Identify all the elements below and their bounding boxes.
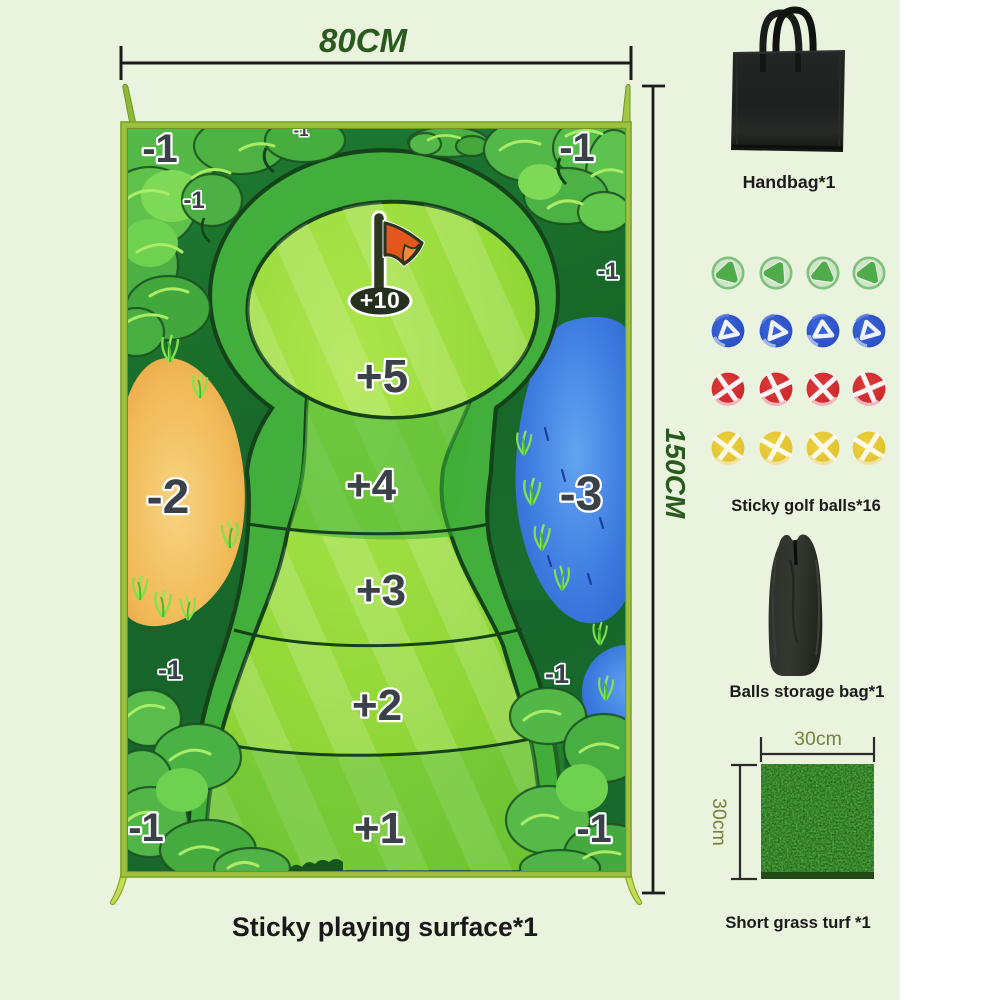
svg-text:-1: -1 (158, 655, 182, 685)
svg-text:Sticky golf balls*16: Sticky golf balls*16 (731, 497, 880, 515)
svg-text:Short grass turf *1: Short grass turf *1 (725, 913, 871, 932)
svg-text:Balls storage bag*1: Balls storage bag*1 (730, 682, 885, 701)
svg-text:+5: +5 (356, 350, 408, 402)
svg-text:-1: -1 (559, 126, 595, 170)
svg-text:30cm: 30cm (794, 728, 842, 750)
svg-text:30cm: 30cm (708, 798, 730, 846)
svg-text:-1: -1 (142, 127, 178, 171)
svg-text:Handbag*1: Handbag*1 (743, 172, 836, 192)
svg-text:-1: -1 (545, 659, 569, 689)
svg-text:-1: -1 (597, 258, 618, 285)
svg-text:+3: +3 (356, 566, 406, 615)
svg-text:+10: +10 (360, 287, 401, 313)
svg-text:150CM: 150CM (660, 428, 691, 519)
svg-text:-1: -1 (128, 806, 164, 850)
svg-text:80CM: 80CM (319, 22, 409, 59)
svg-text:-3: -3 (560, 468, 603, 521)
svg-text:+1: +1 (354, 804, 404, 853)
svg-text:-1: -1 (183, 187, 204, 214)
svg-text:Sticky playing surface*1: Sticky playing surface*1 (232, 912, 538, 942)
svg-text:-1: -1 (576, 807, 612, 851)
svg-text:-2: -2 (147, 471, 190, 524)
svg-text:+4: +4 (346, 461, 397, 510)
svg-text:+2: +2 (352, 681, 402, 730)
